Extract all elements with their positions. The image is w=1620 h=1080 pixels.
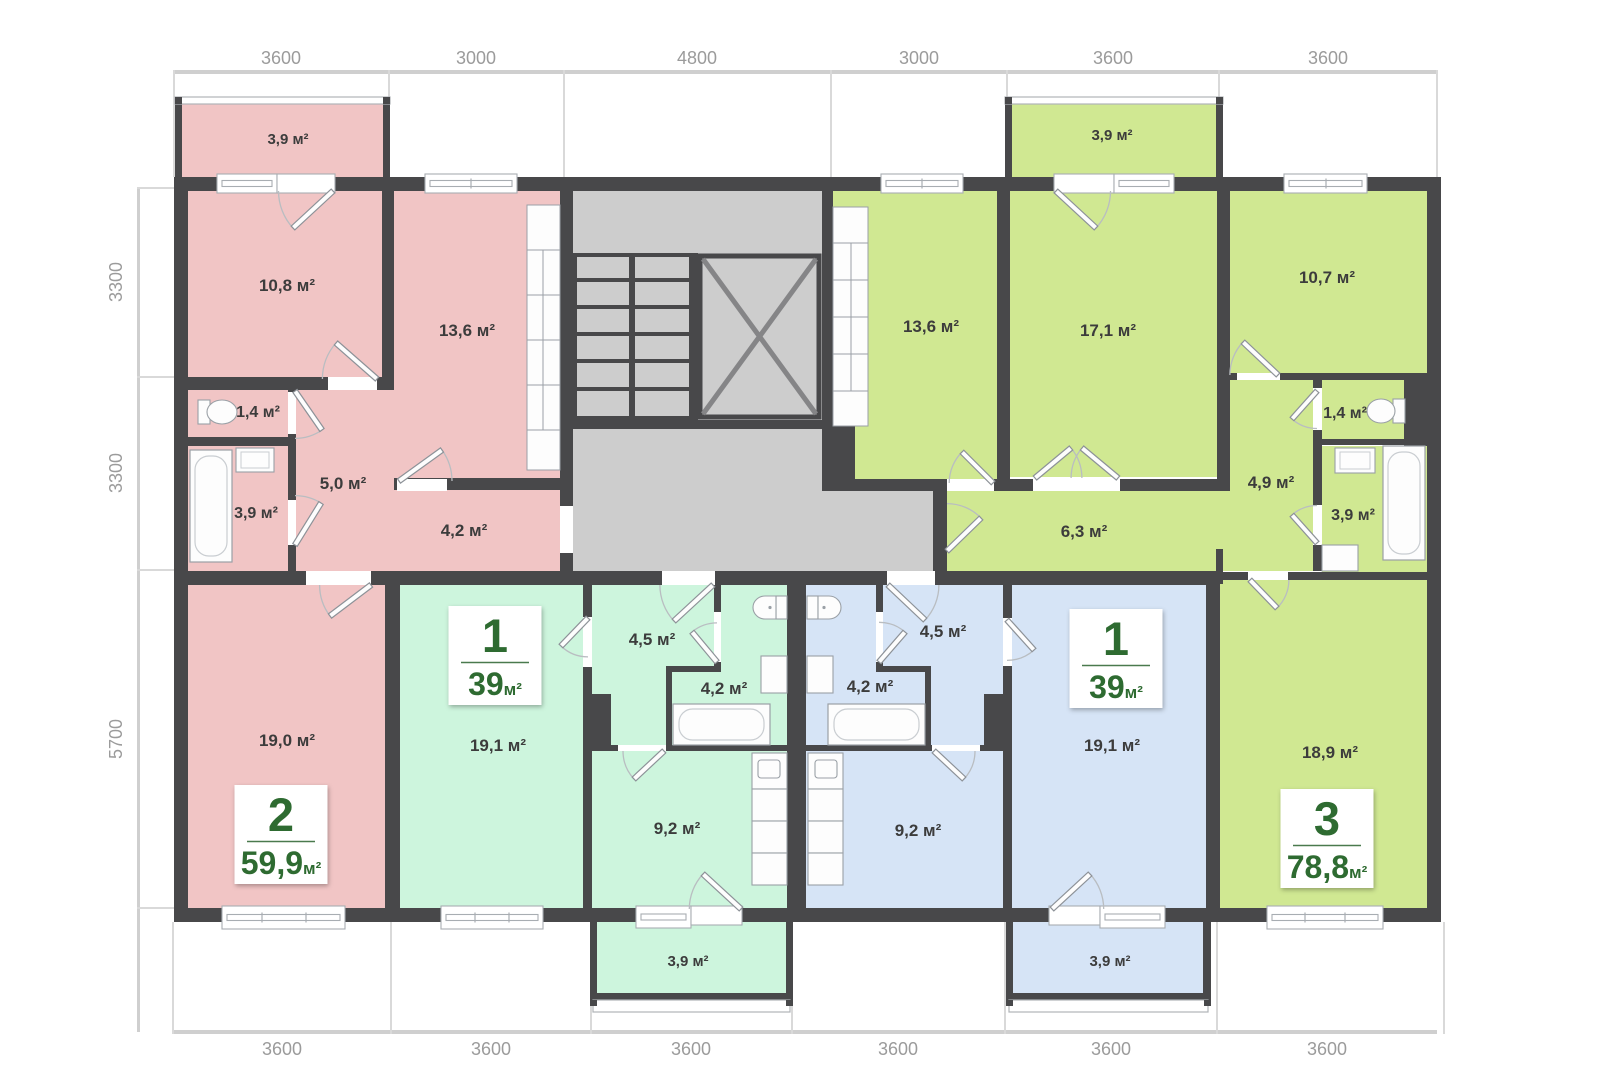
svg-text:3600: 3600 bbox=[1308, 48, 1348, 68]
svg-text:3300: 3300 bbox=[106, 262, 126, 302]
svg-text:3600: 3600 bbox=[671, 1039, 711, 1059]
svg-text:3600: 3600 bbox=[1307, 1039, 1347, 1059]
svg-text:5700: 5700 bbox=[106, 719, 126, 759]
svg-text:3,9 м²: 3,9 м² bbox=[267, 131, 308, 148]
svg-text:3300: 3300 bbox=[106, 453, 126, 493]
svg-text:5,0 м²: 5,0 м² bbox=[320, 474, 367, 493]
svg-text:3600: 3600 bbox=[878, 1039, 918, 1059]
svg-text:3600: 3600 bbox=[1091, 1039, 1131, 1059]
svg-text:13,6 м²: 13,6 м² bbox=[903, 317, 959, 336]
svg-text:19,1 м²: 19,1 м² bbox=[1084, 736, 1140, 755]
svg-text:3600: 3600 bbox=[262, 1039, 302, 1059]
svg-text:4800: 4800 bbox=[677, 48, 717, 68]
svg-text:18,9 м²: 18,9 м² bbox=[1302, 743, 1358, 762]
svg-text:4,5 м²: 4,5 м² bbox=[920, 622, 967, 641]
svg-text:3600: 3600 bbox=[1093, 48, 1133, 68]
svg-text:4,2 м²: 4,2 м² bbox=[441, 521, 488, 540]
svg-text:10,8 м²: 10,8 м² bbox=[259, 276, 315, 295]
svg-text:3,9 м²: 3,9 м² bbox=[1091, 127, 1132, 144]
svg-text:3000: 3000 bbox=[456, 48, 496, 68]
svg-text:13,6 м²: 13,6 м² bbox=[439, 321, 495, 340]
svg-text:1,4 м²: 1,4 м² bbox=[1323, 405, 1367, 422]
svg-text:1: 1 bbox=[482, 609, 508, 662]
svg-text:19,0 м²: 19,0 м² bbox=[259, 731, 315, 750]
svg-text:19,1 м²: 19,1 м² bbox=[470, 736, 526, 755]
svg-text:3,9 м²: 3,9 м² bbox=[1089, 953, 1130, 970]
svg-text:9,2 м²: 9,2 м² bbox=[895, 821, 942, 840]
svg-text:4,2 м²: 4,2 м² bbox=[701, 679, 748, 698]
svg-text:3600: 3600 bbox=[471, 1039, 511, 1059]
svg-text:1,4 м²: 1,4 м² bbox=[236, 404, 280, 421]
svg-text:17,1 м²: 17,1 м² bbox=[1080, 321, 1136, 340]
svg-text:9,2 м²: 9,2 м² bbox=[654, 819, 701, 838]
svg-text:4,9 м²: 4,9 м² bbox=[1248, 473, 1295, 492]
svg-text:3,9 м²: 3,9 м² bbox=[234, 505, 278, 522]
svg-text:2: 2 bbox=[268, 788, 294, 841]
svg-text:3000: 3000 bbox=[899, 48, 939, 68]
svg-text:3,9 м²: 3,9 м² bbox=[667, 953, 708, 970]
svg-text:3,9 м²: 3,9 м² bbox=[1331, 507, 1375, 524]
svg-text:6,3 м²: 6,3 м² bbox=[1061, 522, 1108, 541]
svg-text:4,5 м²: 4,5 м² bbox=[629, 630, 676, 649]
svg-text:3: 3 bbox=[1314, 792, 1340, 845]
svg-text:4,2 м²: 4,2 м² bbox=[847, 677, 894, 696]
svg-text:10,7 м²: 10,7 м² bbox=[1299, 268, 1355, 287]
svg-text:1: 1 bbox=[1103, 612, 1129, 665]
svg-text:3600: 3600 bbox=[261, 48, 301, 68]
